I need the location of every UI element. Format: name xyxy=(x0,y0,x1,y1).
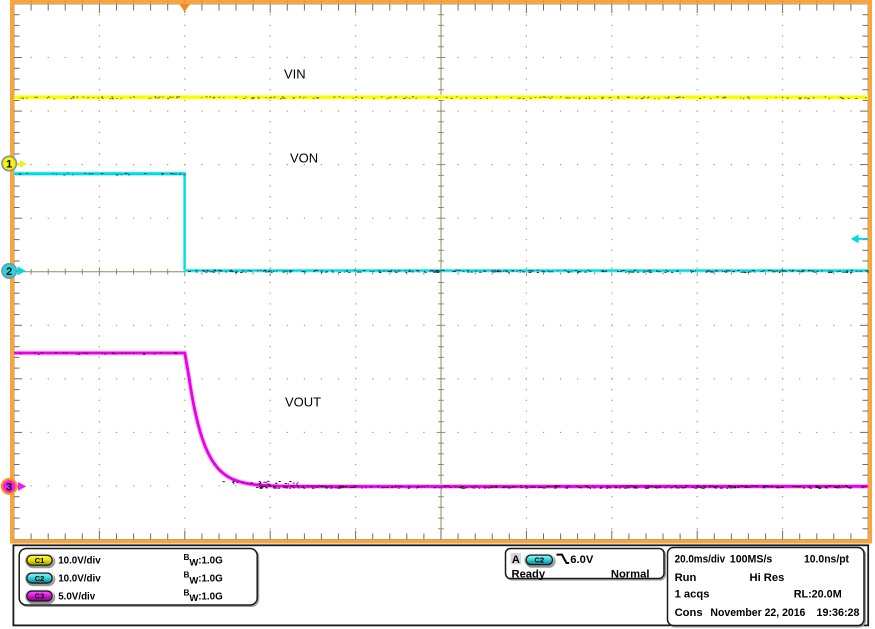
svg-text:A: A xyxy=(512,554,520,566)
svg-text:Normal: Normal xyxy=(611,568,650,580)
svg-text:W: W xyxy=(189,593,198,604)
svg-text:W: W xyxy=(189,557,198,568)
svg-text:20.0ms/div: 20.0ms/div xyxy=(675,553,726,565)
svg-text:6.0V: 6.0V xyxy=(570,554,594,566)
svg-text:1 acqs: 1 acqs xyxy=(675,589,710,601)
svg-text:10.0V/div: 10.0V/div xyxy=(58,556,101,567)
svg-text:Run: Run xyxy=(675,572,697,584)
svg-text:C1: C1 xyxy=(35,556,45,565)
svg-text:2: 2 xyxy=(6,266,12,278)
svg-text:November 22, 2016: November 22, 2016 xyxy=(710,607,805,619)
svg-text::1.0G: :1.0G xyxy=(198,556,223,567)
svg-text:100MS/s: 100MS/s xyxy=(730,553,773,565)
svg-text:VON: VON xyxy=(290,151,318,166)
svg-text:3: 3 xyxy=(6,481,12,493)
svg-text:Cons: Cons xyxy=(675,607,703,619)
svg-text:10.0V/div: 10.0V/div xyxy=(58,574,101,585)
svg-text:1: 1 xyxy=(6,158,12,170)
svg-text:VOUT: VOUT xyxy=(285,394,321,409)
svg-text:C2: C2 xyxy=(534,556,544,565)
svg-text:C2: C2 xyxy=(35,574,45,583)
svg-text:5.0V/div: 5.0V/div xyxy=(58,591,96,602)
svg-text:VIN: VIN xyxy=(284,67,306,82)
svg-text:Ready: Ready xyxy=(512,568,546,580)
svg-text:Hi Res: Hi Res xyxy=(750,572,785,584)
svg-text:10.0ns/pt: 10.0ns/pt xyxy=(804,553,849,565)
svg-text:RL:20.0M: RL:20.0M xyxy=(794,589,842,601)
svg-text:C3: C3 xyxy=(35,592,45,601)
svg-text::1.0G: :1.0G xyxy=(198,591,223,602)
svg-text:19:36:28: 19:36:28 xyxy=(817,607,860,619)
svg-text:W: W xyxy=(189,575,198,586)
svg-text::1.0G: :1.0G xyxy=(198,573,223,584)
